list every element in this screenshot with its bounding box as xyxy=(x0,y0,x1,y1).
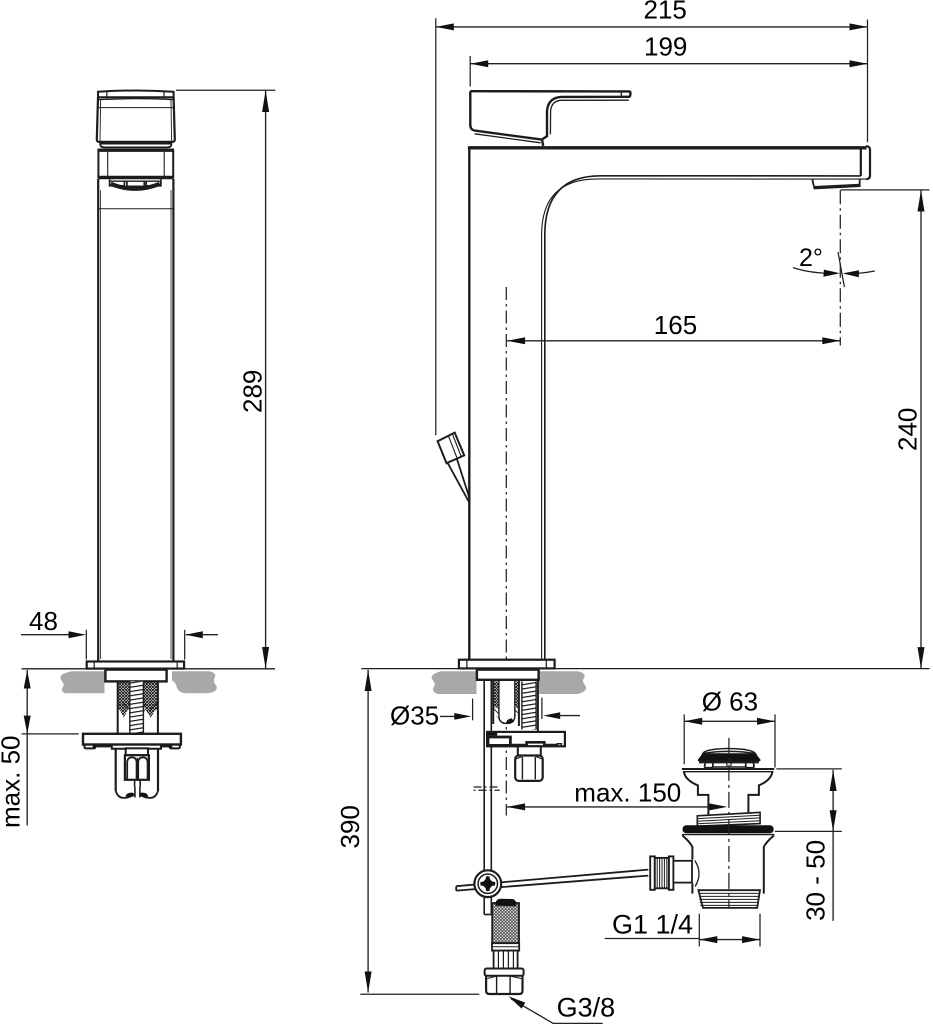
svg-text:max. 50: max. 50 xyxy=(0,736,26,829)
svg-text:30 - 50: 30 - 50 xyxy=(801,840,831,921)
svg-text:199: 199 xyxy=(644,32,687,62)
svg-text:max. 150: max. 150 xyxy=(574,778,681,808)
svg-text:390: 390 xyxy=(335,805,365,848)
svg-text:Ø 63: Ø 63 xyxy=(702,687,758,717)
svg-text:Ø35: Ø35 xyxy=(390,701,439,731)
svg-text:48: 48 xyxy=(29,606,58,636)
svg-text:240: 240 xyxy=(893,408,923,451)
svg-text:165: 165 xyxy=(654,310,697,340)
svg-text:G3/8: G3/8 xyxy=(557,993,616,1023)
svg-text:2°: 2° xyxy=(799,244,823,272)
svg-text:G1 1/4: G1 1/4 xyxy=(612,910,693,940)
svg-text:215: 215 xyxy=(644,0,687,25)
svg-text:289: 289 xyxy=(238,370,268,413)
